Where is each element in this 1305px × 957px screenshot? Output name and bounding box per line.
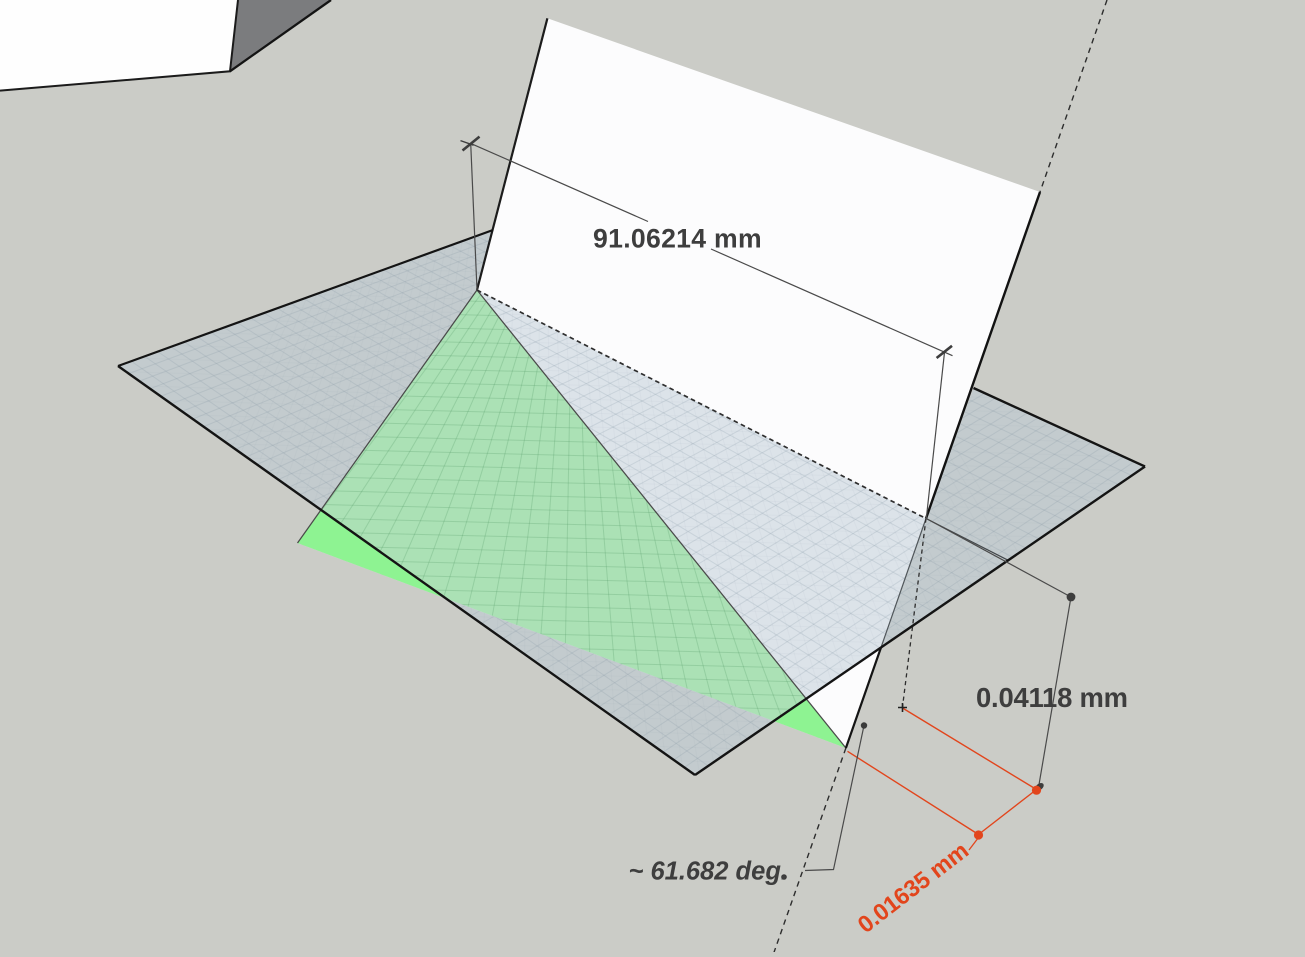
svg-text:91.06214 mm: 91.06214 mm	[593, 223, 762, 253]
svg-text:~ 61.682 deg.: ~ 61.682 deg.	[629, 858, 788, 886]
svg-text:0.04118 mm: 0.04118 mm	[976, 682, 1128, 713]
